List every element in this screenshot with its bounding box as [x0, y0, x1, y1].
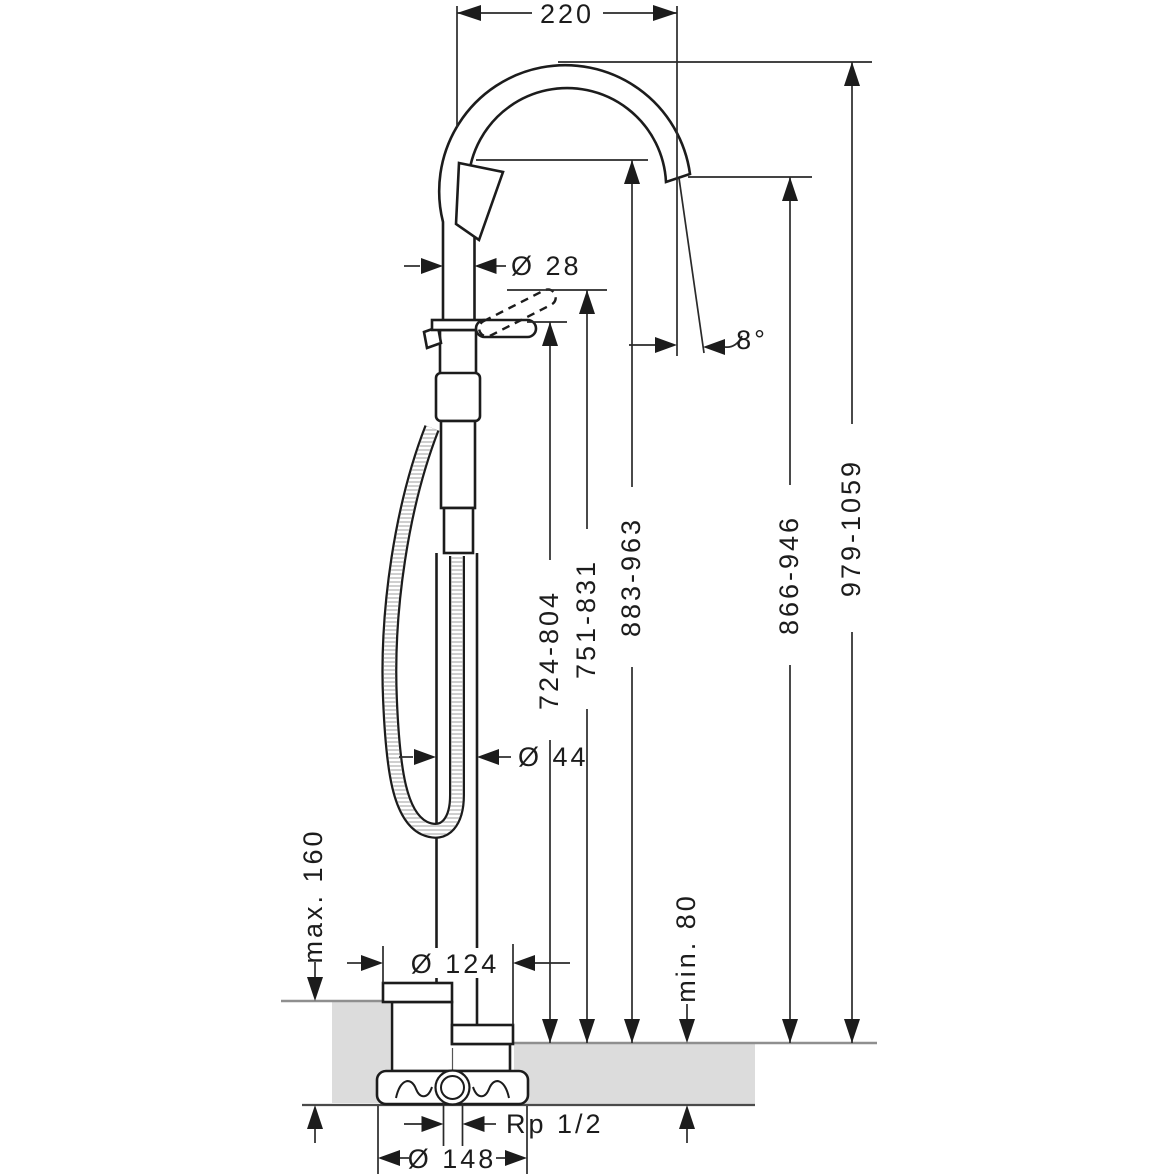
dim-label-pipe-diameter: Ø 28 — [511, 251, 582, 281]
escutcheon-cap-left-high-floor — [383, 983, 452, 1002]
dim-label-connection-thread: Rp 1/2 — [506, 1109, 604, 1139]
base-escutcheon — [377, 983, 528, 1105]
dim-label-spout-tip-height: 866-946 — [774, 515, 804, 635]
dim-label-spout-angle: 8° — [736, 325, 768, 355]
valve-mid-section — [436, 373, 480, 421]
connection-port-inner — [441, 1076, 464, 1099]
extension-lines — [476, 62, 872, 322]
dim-label-escutcheon-diameter: Ø 124 — [411, 949, 500, 979]
dim-label-column-diameter: Ø 44 — [518, 742, 589, 772]
dim-max-160: max. 160 — [298, 828, 328, 1143]
dim-label-floor-max: max. 160 — [298, 828, 328, 963]
escutcheon-cap-right-low-floor — [452, 1025, 513, 1044]
dim-724-804: 724-804 — [534, 322, 564, 1043]
dim-label-floor-min: min. 80 — [671, 893, 701, 1003]
valve-body — [424, 287, 558, 553]
dim-rp-half: Rp 1/2 — [404, 1103, 604, 1146]
dim-dia-28: Ø 28 — [404, 251, 582, 281]
floor-slabs — [281, 1001, 877, 1105]
valve-lower-section — [441, 421, 475, 508]
dim-label-handle-height: 724-804 — [534, 590, 564, 710]
valve-upper-section — [440, 330, 476, 375]
dim-866-946: 866-946 — [774, 177, 804, 1043]
hand-shower — [456, 163, 503, 240]
faucet-dimension-diagram: 220 Ø 28 8° — [0, 0, 1176, 1176]
dim-dia-44: Ø 44 — [399, 742, 589, 772]
technical-drawing-page: 220 Ø 28 8° — [0, 0, 1176, 1176]
dim-angle-8: 8° — [629, 178, 768, 355]
dim-979-1059: 979-1059 — [836, 62, 866, 1043]
dim-883-963: 883-963 — [616, 160, 646, 1043]
dim-dia-148: Ø 148 — [378, 1106, 527, 1174]
dim-label-total-height: 979-1059 — [836, 459, 866, 597]
dim-751-831: 751-831 — [571, 290, 601, 1043]
dim-label-base-diameter: Ø 148 — [408, 1144, 497, 1174]
dim-label-top-width: 220 — [540, 0, 594, 29]
floor-slab-right — [514, 1044, 755, 1104]
valve-tail-section — [444, 508, 473, 553]
dim-label-handle-raised-height: 751-831 — [571, 559, 601, 679]
dim-label-spout-outlet-height: 883-963 — [616, 517, 646, 637]
